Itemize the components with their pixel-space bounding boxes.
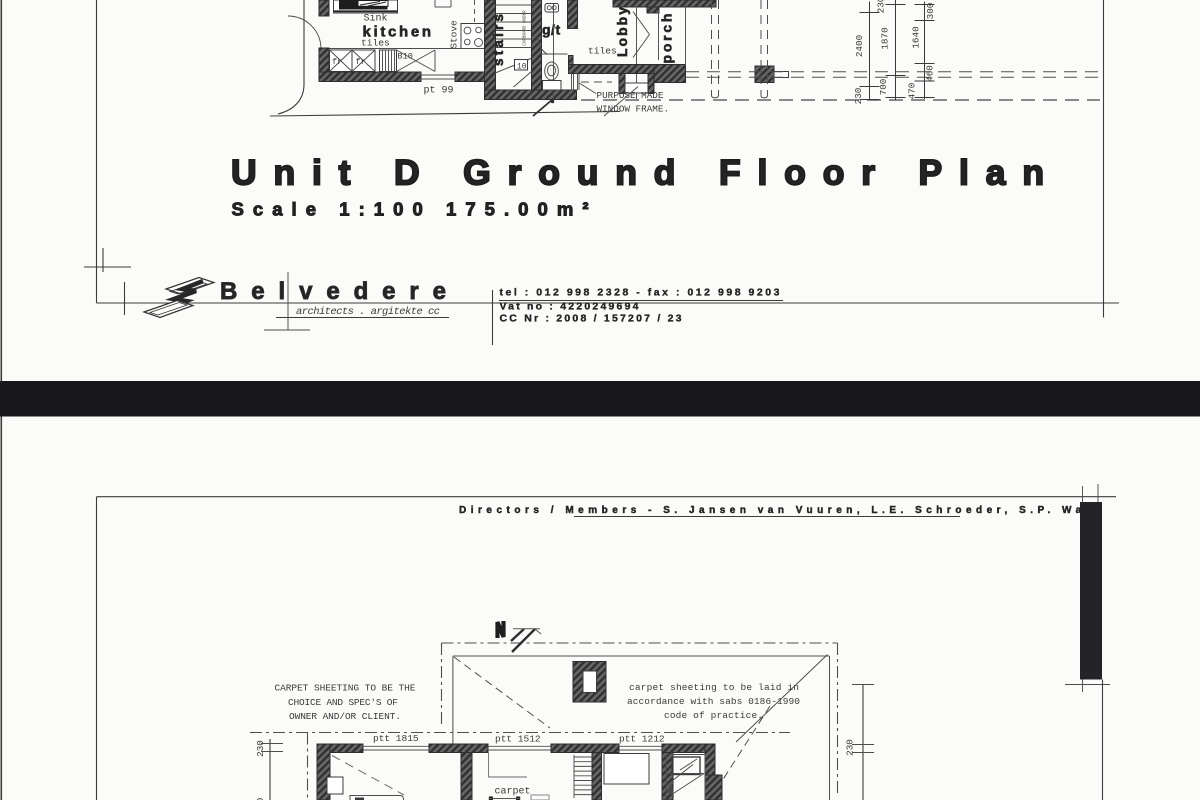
svg-text:B10: B10: [398, 52, 413, 62]
svg-text:architects . argitekte cc: architects . argitekte cc: [296, 306, 440, 318]
svg-text:carpet sheeting to be laid in: carpet sheeting to be laid in: [629, 682, 799, 693]
svg-text:CARPET SHEETING TO BE THE: CARPET SHEETING TO BE THE: [275, 683, 416, 694]
svg-text:pt 99: pt 99: [424, 86, 454, 97]
svg-text:tiles: tiles: [588, 46, 617, 57]
svg-text:ptt 1815: ptt 1815: [373, 733, 419, 744]
svg-text:2400: 2400: [854, 35, 865, 57]
svg-text:230: 230: [845, 739, 856, 756]
svg-text:fr: fr: [332, 57, 342, 67]
svg-text:Stove: Stove: [449, 20, 460, 49]
svg-text:460: 460: [925, 65, 936, 82]
svg-text:300: 300: [925, 3, 936, 20]
svg-text:fr: fr: [356, 57, 366, 67]
svg-text:10: 10: [517, 63, 527, 72]
svg-text:code of practice.: code of practice.: [664, 710, 763, 721]
svg-text:CC Nr : 2008 / 157207 / 23: CC Nr : 2008 / 157207 / 23: [500, 313, 682, 325]
svg-text:230: 230: [853, 88, 864, 105]
svg-text:OWNER AND/OR CLIENT.: OWNER AND/OR CLIENT.: [289, 711, 401, 722]
svg-text:1870: 1870: [880, 27, 891, 49]
svg-text:Belvedere: Belvedere: [220, 278, 446, 305]
svg-text:CUPBOARD UNDER: CUPBOARD UNDER: [524, 10, 528, 46]
svg-text:470: 470: [907, 83, 918, 100]
svg-text:porch: porch: [659, 14, 675, 64]
svg-text:carpet: carpet: [495, 787, 531, 798]
svg-text:230: 230: [255, 740, 266, 757]
svg-text:accordance with sabs 0186-1990: accordance with sabs 0186-1990: [627, 696, 800, 707]
svg-text:CHOICE AND SPEC'S OF: CHOICE AND SPEC'S OF: [288, 697, 398, 708]
svg-text:tel : 012 998 2328 - fax : 012: tel : 012 998 2328 - fax : 012 998 9203: [500, 287, 780, 299]
svg-text:230: 230: [876, 0, 887, 13]
svg-text:ptt 1212: ptt 1212: [619, 734, 665, 745]
svg-text:1640: 1640: [911, 26, 922, 48]
svg-text:ptt 1512: ptt 1512: [495, 734, 541, 745]
svg-text:g/t: g/t: [542, 22, 561, 38]
svg-text:tiles: tiles: [361, 38, 390, 49]
svg-text:700: 700: [878, 79, 889, 96]
